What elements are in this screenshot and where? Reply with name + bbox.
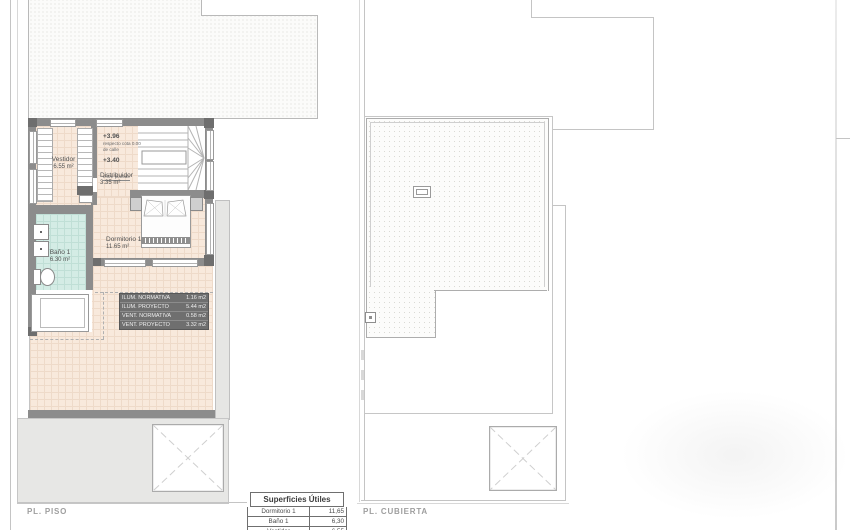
cota-mark — [361, 350, 364, 360]
level-value: +3.40 — [103, 157, 158, 165]
wall-terrace-bottom — [28, 410, 230, 418]
column — [204, 118, 214, 128]
wall-bath-top — [36, 205, 93, 214]
lum-vent-label: ILUM. PROYECTO — [122, 304, 169, 310]
lum-vent-value: 0.58 m2 — [186, 313, 206, 319]
window — [206, 203, 214, 255]
room-name: Dormitorio 1 — [106, 236, 141, 244]
room-name: Vestidor — [36, 156, 91, 164]
column — [93, 258, 101, 266]
lum-vent-row: VENT. NORMATIVA0.58 m2 — [120, 311, 208, 320]
plot-boundary — [531, 17, 653, 18]
plan-title-cubierta: PL. CUBIERTA — [363, 507, 428, 516]
room-label-distribuidor: Distribuidor 3.35 m² — [100, 172, 133, 187]
column — [28, 118, 37, 127]
room-area: 3.35 m² — [100, 180, 133, 187]
level-annotation-upper: +3.96 respecto cota 0.00 de calle — [103, 133, 158, 152]
skylight-cross-icon — [490, 427, 556, 490]
roof-inner-line — [370, 122, 545, 287]
areas-table-row: Baño 1 6,30 — [247, 517, 347, 527]
projection-dashed-line — [30, 339, 104, 340]
lum-vent-row: ILUM. NORMATIVA1.16 m2 — [120, 294, 208, 302]
cota-mark — [361, 370, 364, 380]
sheet-bottom-line — [357, 503, 569, 504]
sheet-frame-line — [10, 0, 11, 530]
paper-shading — [620, 390, 850, 520]
room-area: 11.65 m² — [106, 244, 141, 251]
roof-leg — [366, 290, 436, 338]
window — [50, 119, 76, 127]
room-label-dormitorio: Dormitorio 1 11.65 m² — [106, 236, 141, 251]
plot-boundary — [361, 500, 566, 501]
page-edge-tick — [836, 138, 850, 139]
nightstand — [130, 197, 142, 211]
roof-drain — [365, 312, 376, 323]
skylight-square — [489, 426, 557, 491]
areas-row-value: 11,65 — [309, 507, 346, 516]
areas-row-value: 6,30 — [309, 517, 346, 526]
room-area: 6.30 m² — [38, 257, 82, 264]
column — [204, 190, 214, 199]
room-label-bano: Baño 1 6.30 m² — [38, 249, 82, 264]
skylight-square — [152, 424, 224, 492]
drawing-sheet: ILUM. NORMATIVA1.16 m2 ILUM. PROYECTO5.4… — [0, 0, 850, 530]
sheet-frame-line — [359, 0, 360, 502]
plot-boundary — [531, 0, 532, 17]
areas-table: Superficies Útiles Dormitorio 1 11,65 Ba… — [247, 492, 347, 530]
window — [29, 169, 37, 204]
room-area: 6.55 m² — [36, 164, 91, 171]
lum-vent-table: ILUM. NORMATIVA1.16 m2 ILUM. PROYECTO5.4… — [119, 293, 209, 330]
lum-vent-value: 1.16 m2 — [186, 295, 206, 301]
level-value: +3.96 — [103, 133, 158, 141]
cota-mark — [361, 390, 364, 400]
roof-vent-chimney — [413, 186, 431, 198]
lum-vent-label: ILUM. NORMATIVA — [122, 295, 170, 301]
plot-boundary — [653, 17, 654, 129]
nightstand — [190, 197, 203, 211]
projection-dashed-line — [103, 292, 104, 339]
room-name: Distribuidor — [100, 172, 133, 180]
plot-boundary — [548, 129, 654, 130]
terrace-upper — [28, 0, 318, 119]
roof-step-line — [434, 290, 547, 291]
toilet-bowl — [40, 268, 55, 286]
bathtub-rim — [40, 298, 85, 328]
cabinet-front — [79, 195, 93, 203]
areas-table-row: Dormitorio 1 11,65 — [247, 507, 347, 517]
window — [96, 119, 123, 127]
lum-vent-row: ILUM. PROYECTO5.44 m2 — [120, 302, 208, 311]
lum-vent-value: 3.32 m2 — [186, 322, 206, 328]
skylight-cross-icon — [153, 425, 223, 491]
lum-vent-label: VENT. NORMATIVA — [122, 313, 171, 319]
window — [152, 259, 198, 267]
column — [204, 255, 214, 266]
terrace-notch — [201, 0, 318, 16]
window — [206, 130, 214, 160]
areas-row-name: Baño 1 — [248, 517, 309, 526]
wall-bath-right — [86, 214, 93, 290]
sink — [33, 224, 49, 240]
room-name: Baño 1 — [38, 249, 82, 257]
balcony-strip — [215, 200, 230, 420]
bed-blanket-band — [141, 237, 190, 244]
plot-boundary — [565, 205, 566, 500]
areas-row-name: Dormitorio 1 — [248, 507, 309, 516]
window — [206, 161, 214, 191]
lum-vent-value: 5.44 m2 — [186, 304, 206, 310]
room-label-vestidor: Vestidor 6.55 m² — [36, 156, 91, 171]
areas-table-title: Superficies Útiles — [250, 492, 344, 507]
cabinet — [77, 186, 93, 195]
window — [104, 259, 146, 267]
bed-pillows — [141, 196, 189, 220]
lum-vent-label: VENT. PROYECTO — [122, 322, 170, 328]
boundary-left-low — [29, 336, 30, 410]
lum-vent-row: VENT. PROYECTO3.32 m2 — [120, 320, 208, 329]
plan-title-piso: PL. PISO — [27, 507, 67, 516]
level-note: de calle — [103, 147, 158, 153]
